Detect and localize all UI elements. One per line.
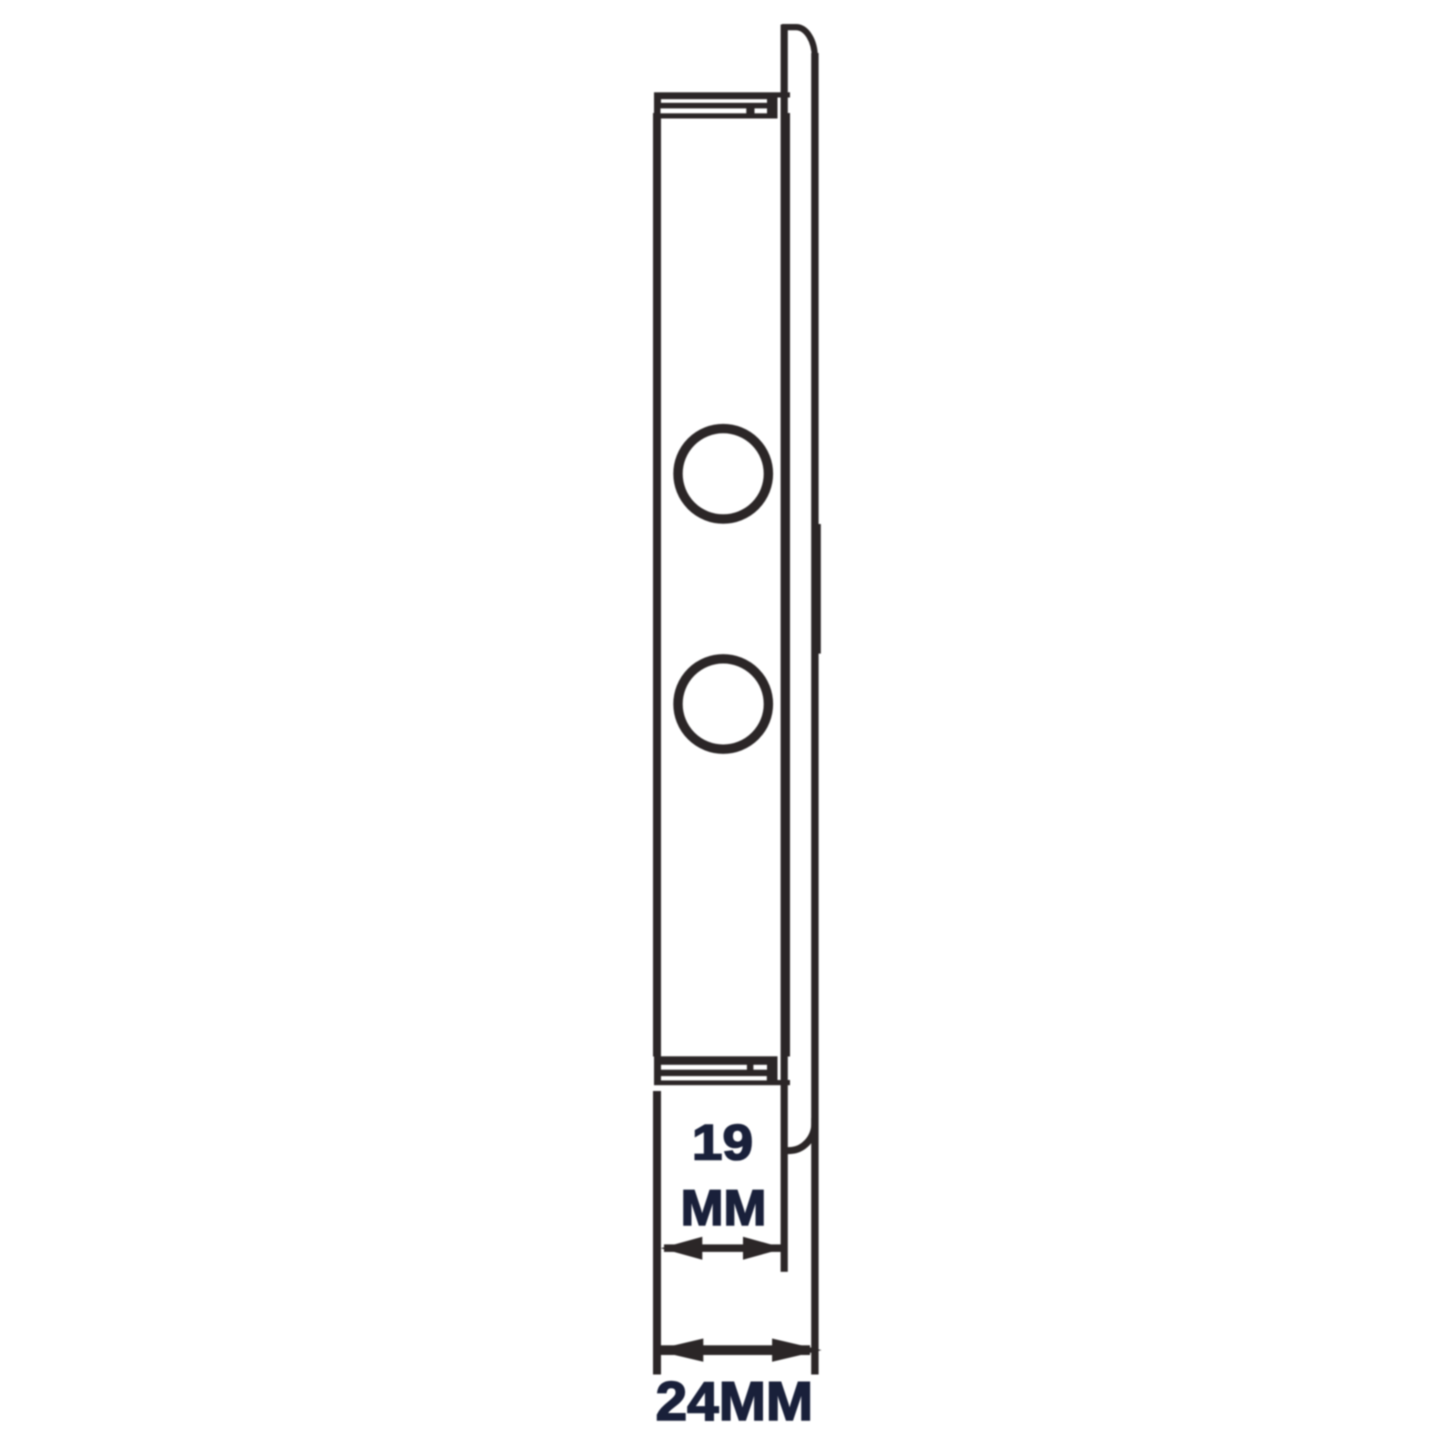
svg-text:MM: MM: [681, 1180, 767, 1236]
svg-text:19: 19: [692, 1115, 753, 1171]
svg-text:24MM: 24MM: [656, 1371, 813, 1432]
